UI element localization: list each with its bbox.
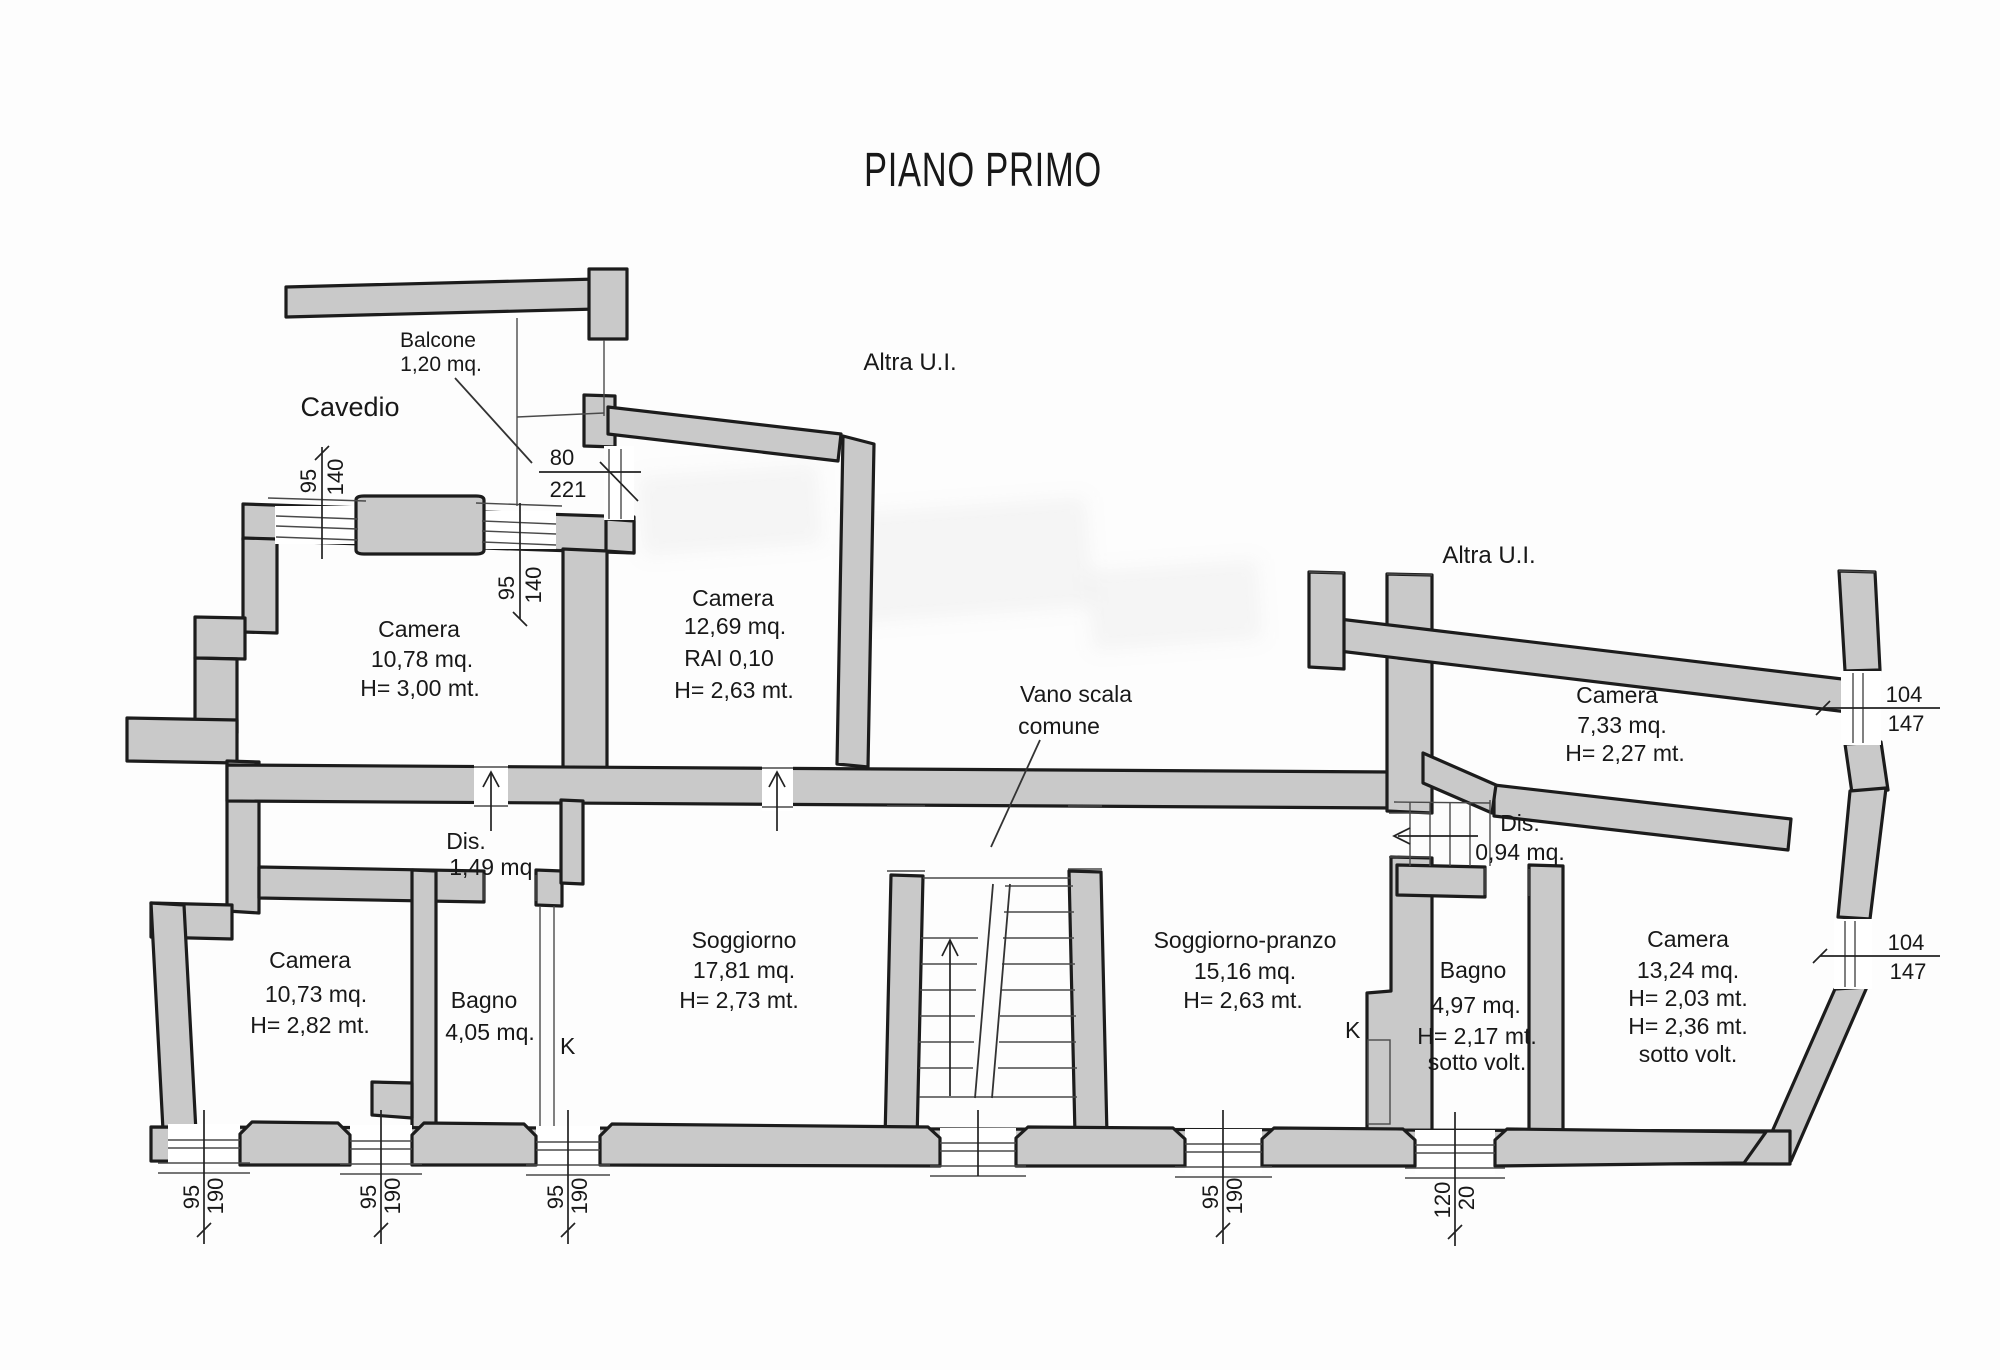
dim-104-147-a2: 104 (1888, 930, 1925, 955)
dim-95-190-a1: 95 (179, 1185, 204, 1209)
floor-plan-svg: PIANO PRIMO Balcone 1,20 mq. Cavedio Alt… (0, 0, 2000, 1370)
dim-95-140-a1: 95 (296, 469, 321, 493)
dim-95-140-b2: 140 (521, 567, 546, 604)
stair-stringer (992, 884, 1010, 1098)
label-bagno497-name: Bagno (1440, 957, 1507, 983)
dim-80-221-a: 80 (550, 445, 574, 470)
label-camera1324-area: 13,24 mq. (1637, 957, 1739, 983)
dim-95-140-b1: 140 (323, 459, 348, 496)
label-camera1324-h2: H= 2,36 mt. (1628, 1013, 1748, 1039)
label-bagno497-note: sotto volt. (1428, 1049, 1526, 1075)
dim-120-20-a: 120 (1430, 1182, 1455, 1219)
label-camera1269-name: Camera (692, 585, 774, 611)
label-soggiorno-h: H= 2,73 mt. (679, 987, 799, 1013)
dim-104-147-b1: 147 (1888, 711, 1925, 736)
dim-95-190-a3: 95 (543, 1185, 568, 1209)
dim-95-190-a4: 95 (1198, 1185, 1223, 1209)
label-dis149-name: Dis. (446, 828, 486, 854)
label-bagno405-name: Bagno (451, 987, 518, 1013)
label-camera1324-h1: H= 2,03 mt. (1628, 985, 1748, 1011)
dim-104-147-a1: 104 (1886, 682, 1923, 707)
label-camera1269-rai: RAI 0,10 (684, 645, 774, 671)
label-balcone-area: 1,20 mq. (400, 353, 482, 376)
label-sogpranzo-h: H= 2,63 mt. (1183, 987, 1303, 1013)
dim-95-190-b2: 190 (380, 1178, 405, 1215)
label-bagno497-area: 4,97 mq. (1431, 992, 1521, 1018)
label-camera1269-h: H= 2,63 mt. (674, 677, 794, 703)
stairwell (919, 878, 1077, 1098)
label-soggiorno-area: 17,81 mq. (693, 957, 795, 983)
label-altra-ui-right: Altra U.I. (1442, 542, 1535, 569)
dim-95-190-b4: 190 (1222, 1178, 1247, 1215)
dim-120-20-b: 20 (1454, 1186, 1479, 1210)
dim-104-147-b2: 147 (1890, 959, 1927, 984)
label-dis094-area: 0,94 mq. (1475, 839, 1565, 865)
dim-95-190-b3: 190 (567, 1178, 592, 1215)
label-sogpranzo-area: 15,16 mq. (1194, 958, 1296, 984)
label-altra-ui-top: Altra U.I. (863, 349, 956, 376)
balcone-leader (455, 378, 532, 463)
label-camera733-name: Camera (1576, 682, 1658, 708)
label-camera1078-name: Camera (378, 616, 460, 642)
label-k-right: K (1345, 1017, 1361, 1043)
label-soggiorno-name: Soggiorno (692, 927, 797, 953)
label-vano-scala-2: comune (1018, 713, 1100, 739)
label-camera733-h: H= 2,27 mt. (1565, 740, 1685, 766)
label-camera1269-area: 12,69 mq. (684, 613, 786, 639)
label-vano-scala-1: Vano scala (1020, 681, 1132, 707)
label-camera1073-name: Camera (269, 947, 351, 973)
label-camera1073-h: H= 2,82 mt. (250, 1012, 370, 1038)
label-camera1073-area: 10,73 mq. (265, 981, 367, 1007)
label-balcone-name: Balcone (400, 329, 476, 352)
label-cavedio: Cavedio (300, 392, 399, 422)
label-dis149-area: 1,49 mq. (449, 854, 539, 880)
label-camera1324-note: sotto volt. (1639, 1041, 1737, 1067)
label-bagno405-area: 4,05 mq. (445, 1019, 535, 1045)
page-title: PIANO PRIMO (864, 144, 1102, 197)
label-camera1324-name: Camera (1647, 926, 1729, 952)
window-right-2 (1834, 919, 1872, 989)
dim-95-140-a2: 95 (494, 576, 519, 600)
label-camera733-area: 7,33 mq. (1577, 712, 1667, 738)
label-dis094-name: Dis. (1500, 810, 1540, 836)
north-wall-pier (356, 496, 484, 554)
dim-80-221-b: 221 (550, 477, 587, 502)
label-sogpranzo-name: Soggiorno-pranzo (1154, 927, 1337, 953)
dim-95-190-b1: 190 (203, 1178, 228, 1215)
label-bagno497-h: H= 2,17 mt. (1417, 1023, 1537, 1049)
floor-plan-page: PIANO PRIMO Balcone 1,20 mq. Cavedio Alt… (0, 0, 2000, 1370)
dim-95-190-a2: 95 (356, 1185, 381, 1209)
label-k-left: K (560, 1033, 576, 1059)
label-camera1078-h: H= 3,00 mt. (360, 675, 480, 701)
label-camera1078-area: 10,78 mq. (371, 646, 473, 672)
